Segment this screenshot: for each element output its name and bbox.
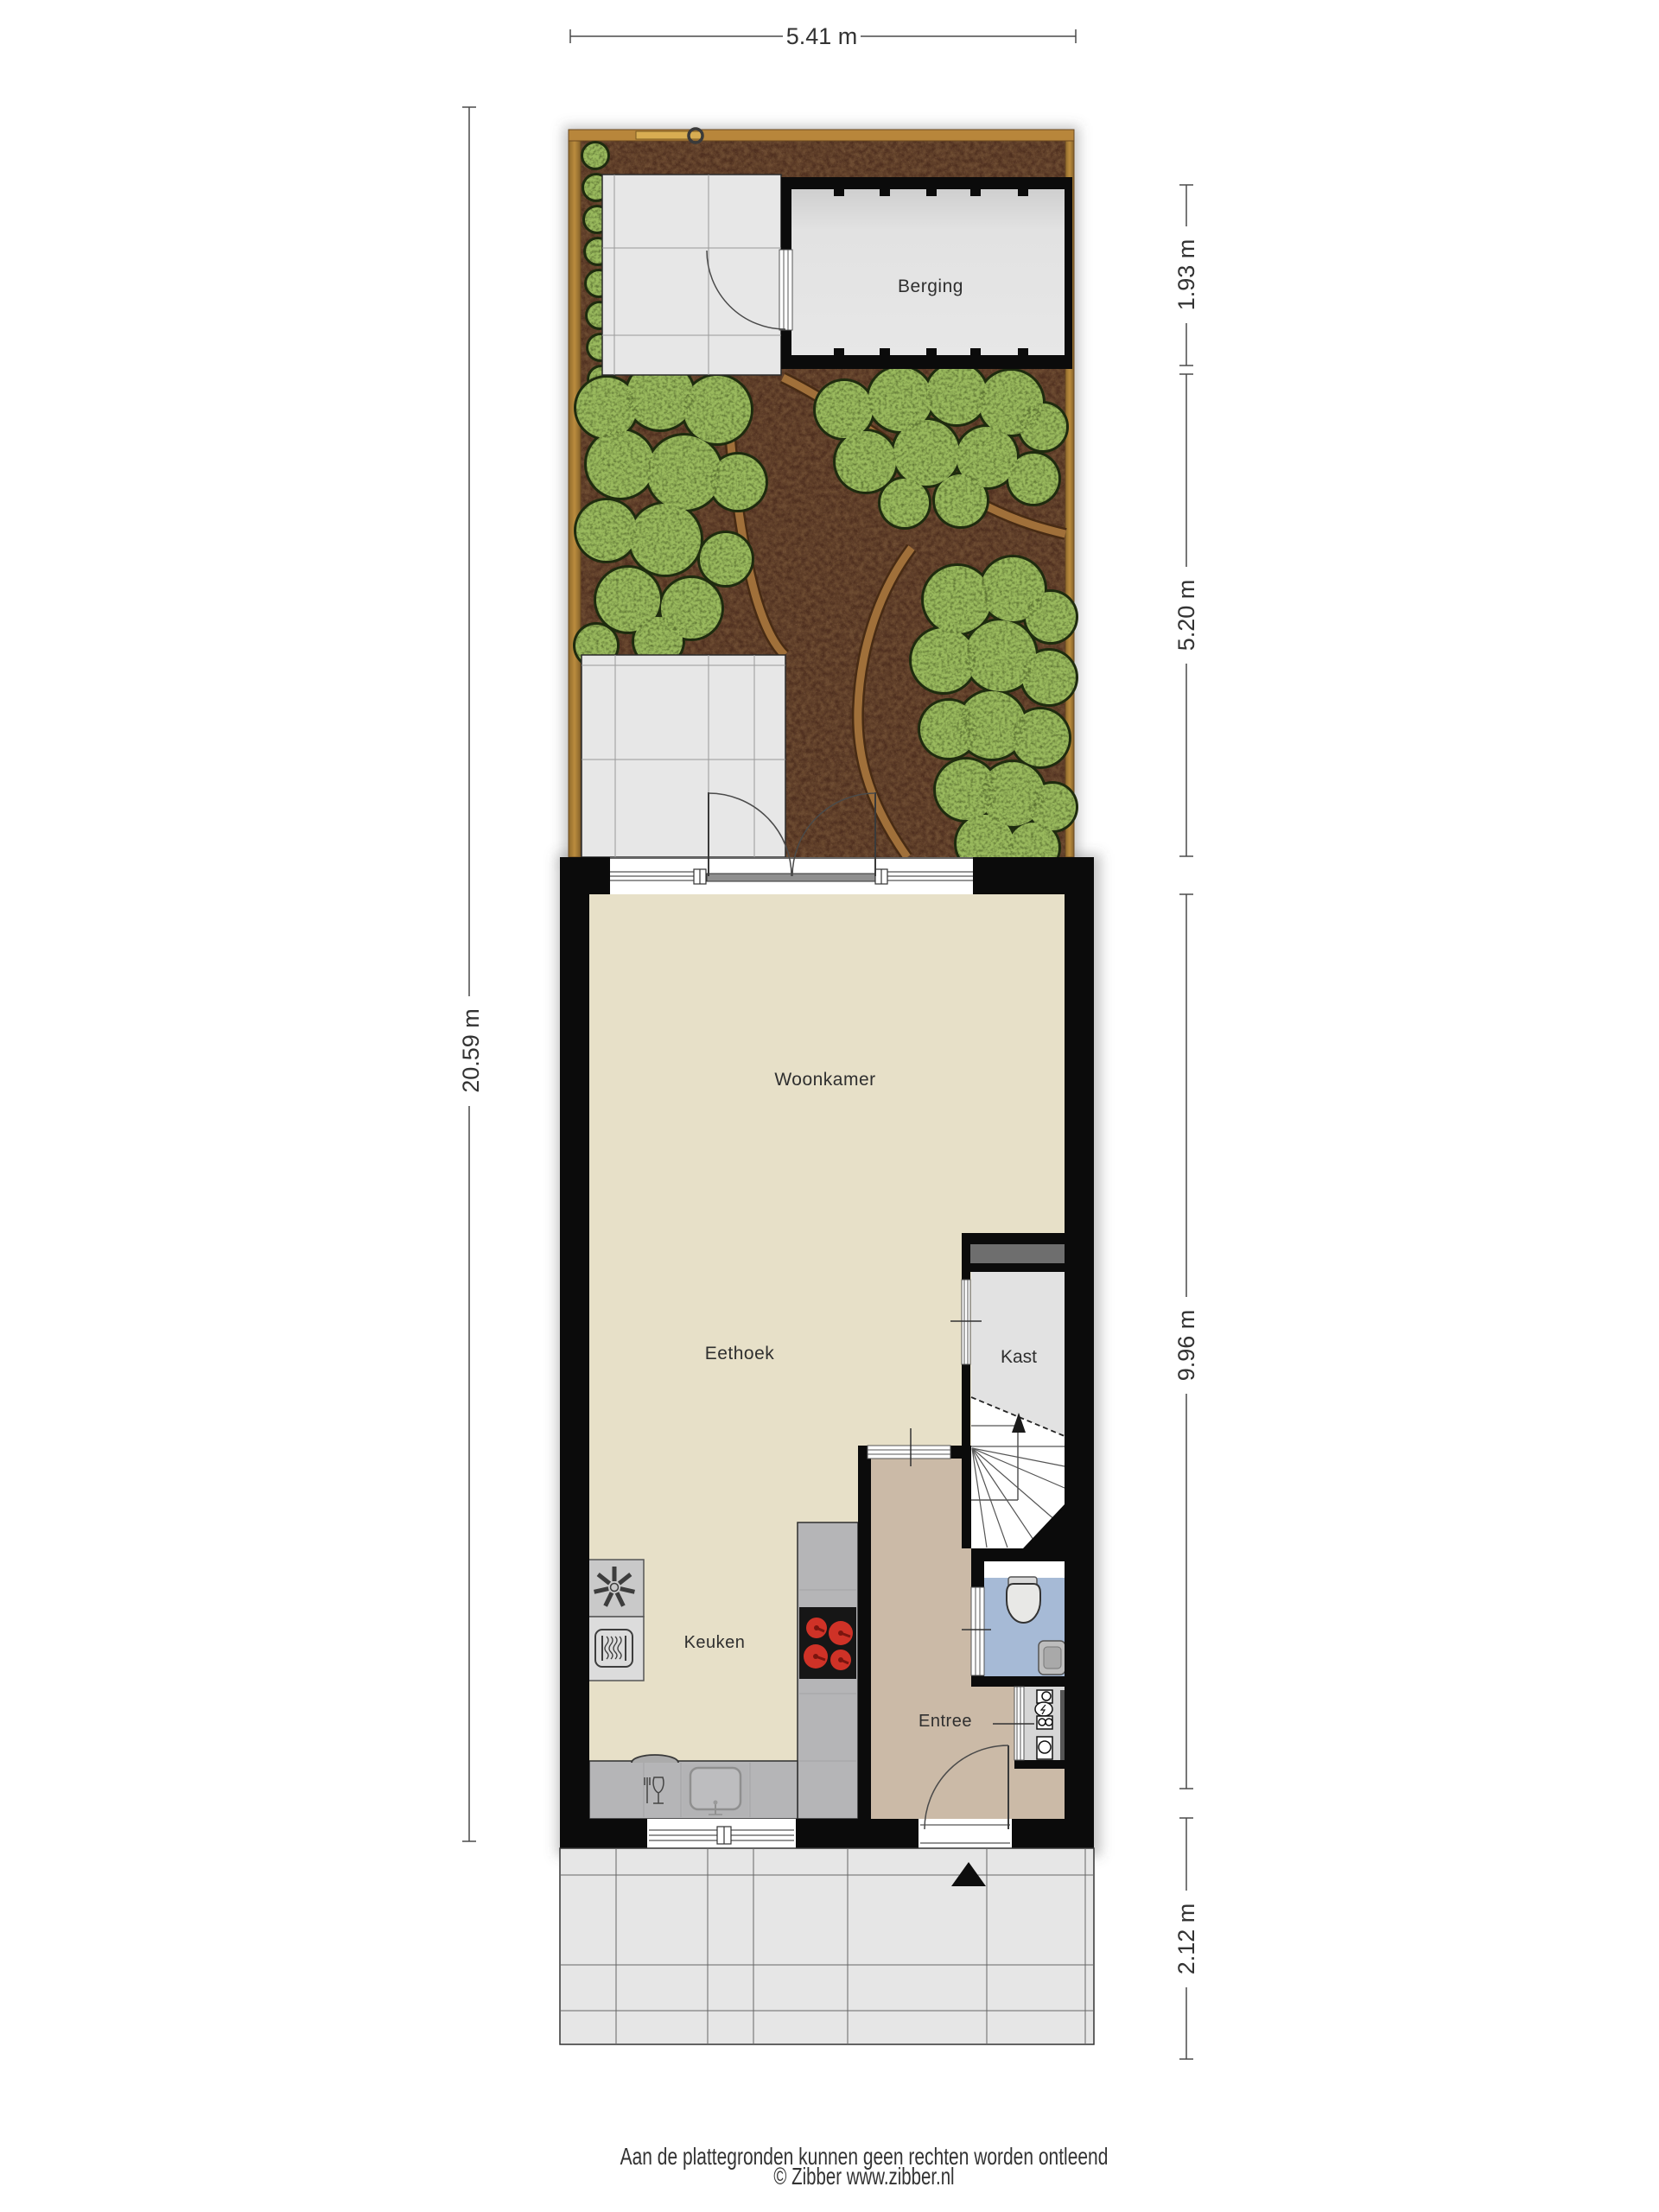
svg-text:Keuken: Keuken (684, 1633, 746, 1652)
svg-text:Eethoek: Eethoek (705, 1344, 775, 1363)
svg-text:5.41 m: 5.41 m (786, 23, 858, 49)
svg-text:5.20 m: 5.20 m (1173, 580, 1199, 652)
svg-text:Entree: Entree (918, 1712, 972, 1731)
svg-text:1.93 m: 1.93 m (1173, 239, 1199, 311)
svg-text:9.96 m: 9.96 m (1173, 1310, 1199, 1382)
svg-text:20.59 m: 20.59 m (458, 1008, 484, 1093)
svg-text:Berging: Berging (898, 276, 963, 296)
svg-text:© Zibber www.zibber.nl: © Zibber www.zibber.nl (773, 2164, 954, 2190)
svg-text:2.12 m: 2.12 m (1173, 1904, 1199, 1975)
svg-text:Woonkamer: Woonkamer (774, 1070, 875, 1090)
svg-text:Kast: Kast (1001, 1347, 1037, 1367)
